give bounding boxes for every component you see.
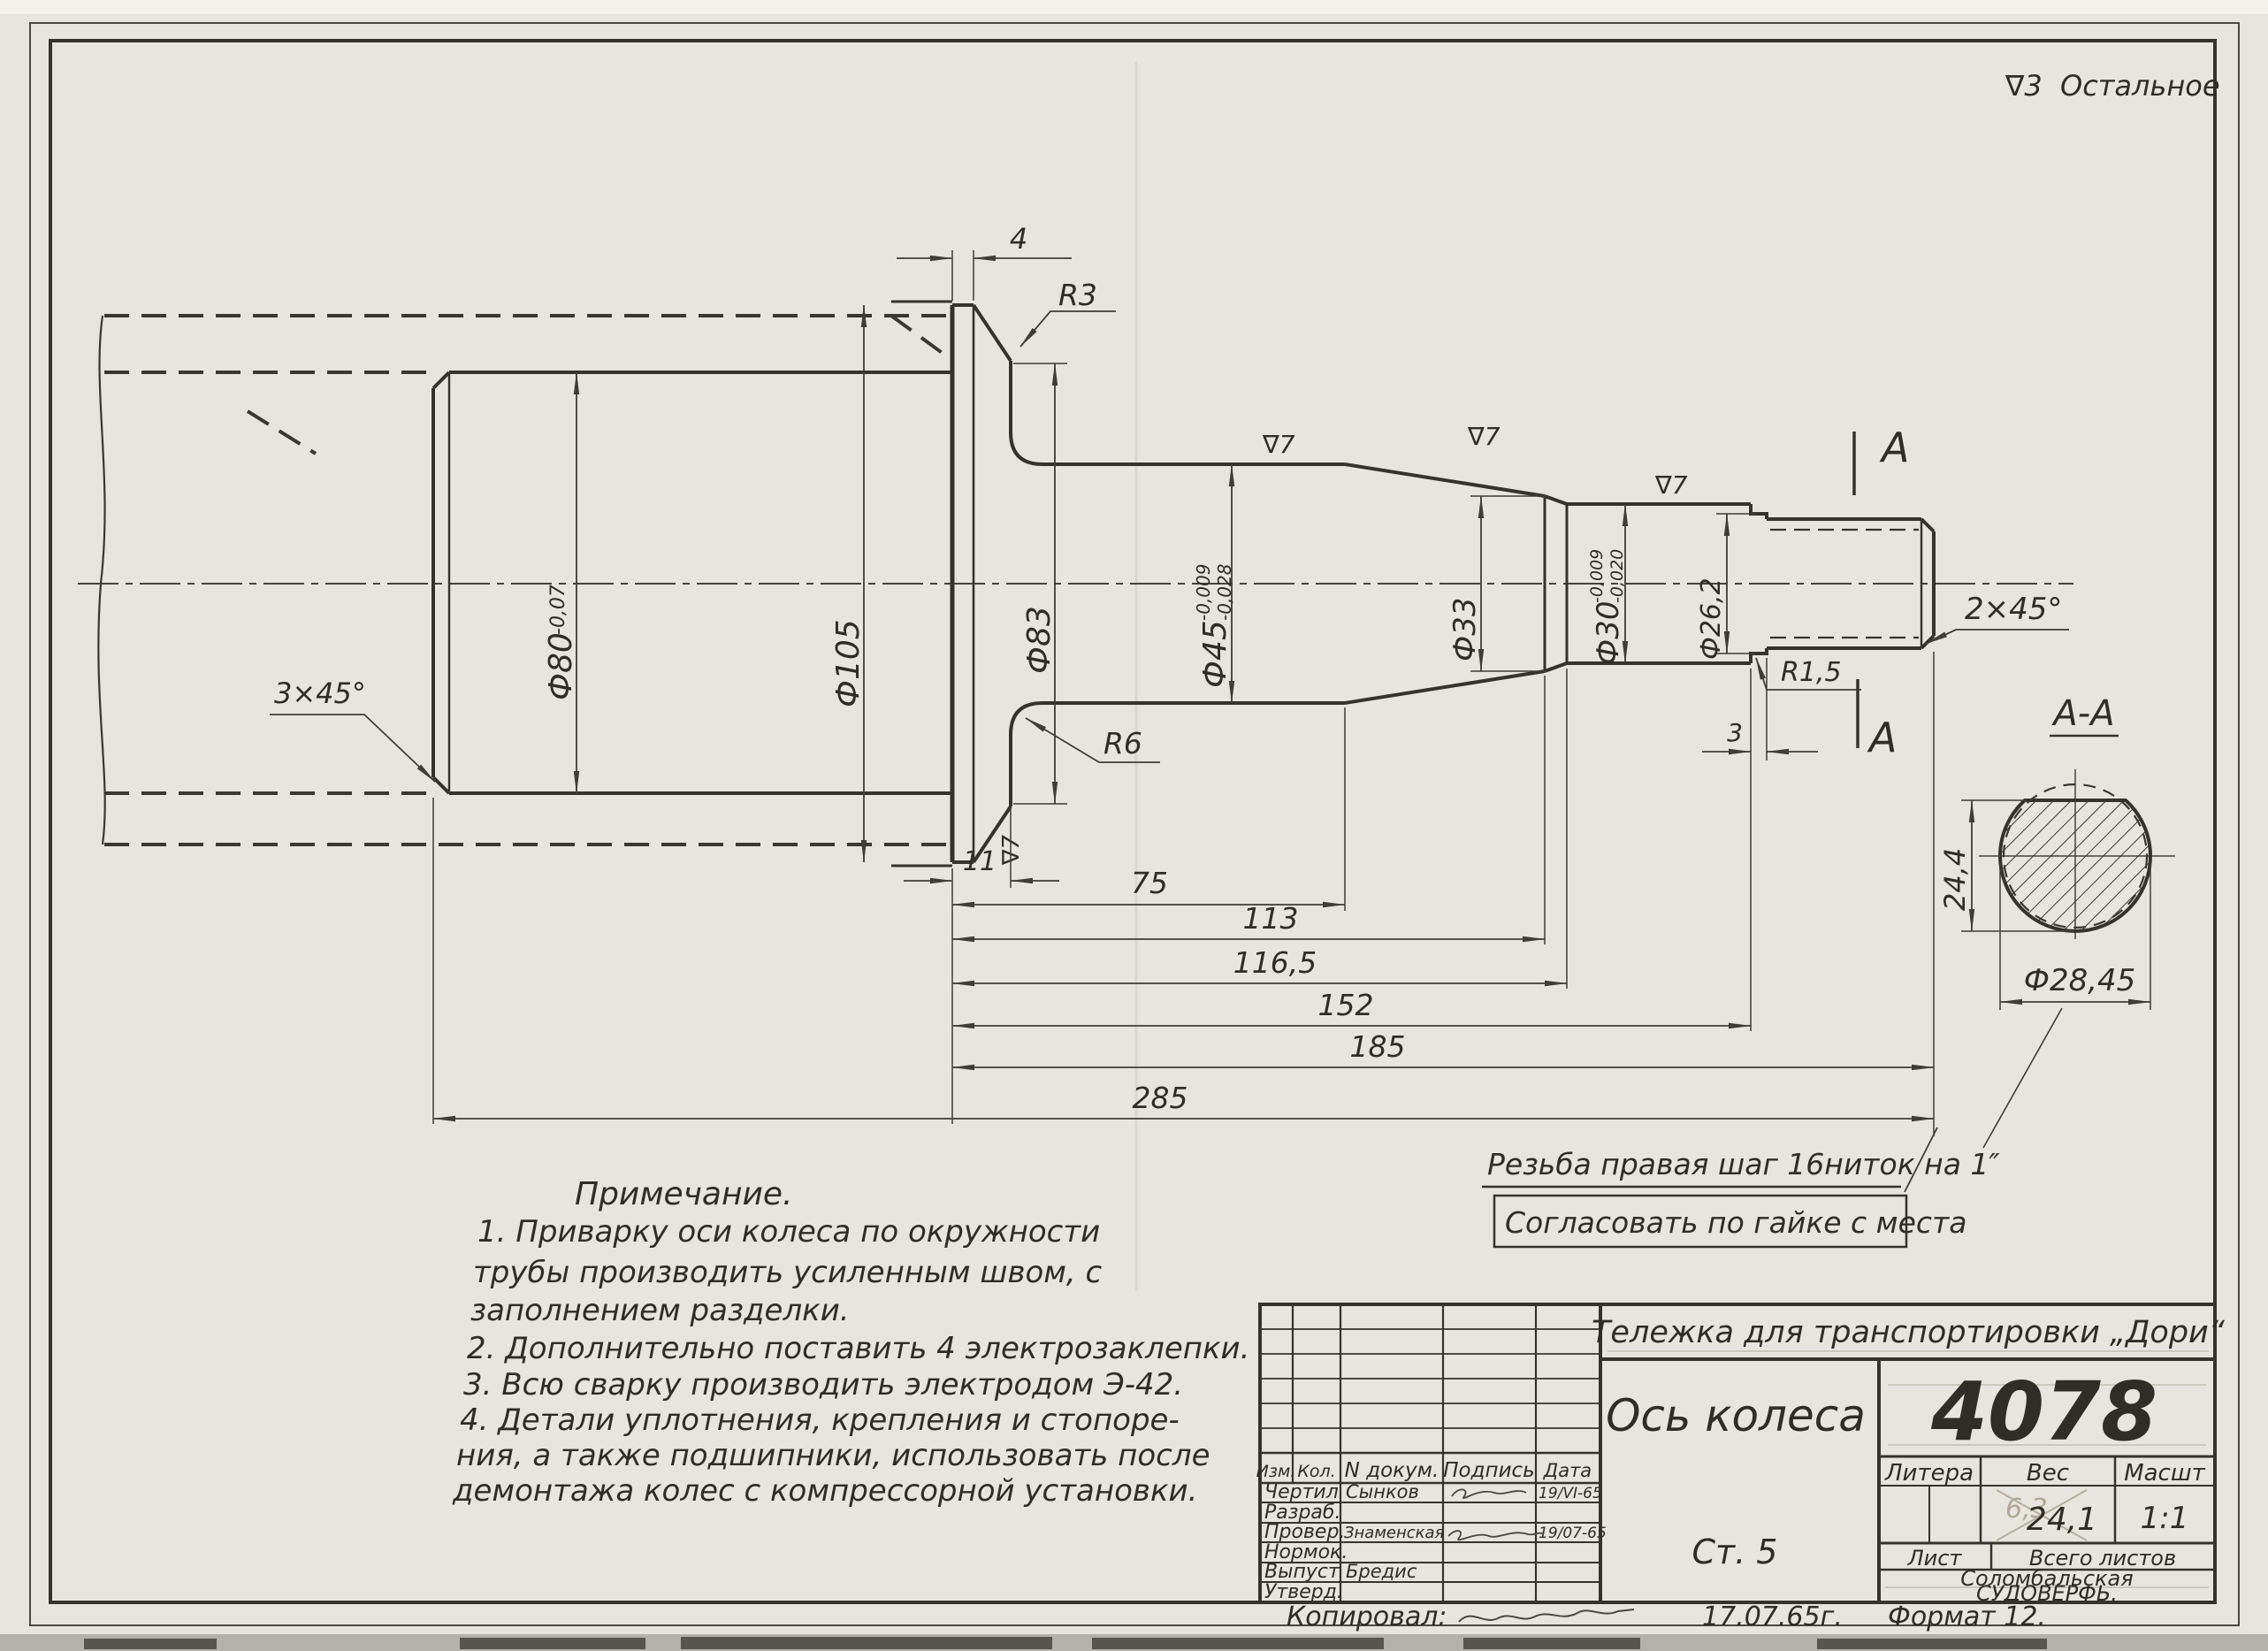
notes-title: Примечание. [575,1176,792,1212]
general-surface-note: ∇3 Остальное [2005,69,2220,103]
svg-text:2×45°: 2×45° [1965,592,2062,627]
sheet-label: Лист [1907,1546,1963,1571]
finish-mark-d45: ∇7 [1262,430,1295,459]
part-title: Ось колеса [1606,1390,1866,1441]
svg-text:Ф30: Ф30 [1591,600,1626,665]
row-date: 19/VI-65 [1539,1485,1602,1502]
surface-finish-symbol: ∇3 [2005,69,2043,103]
finish-mark-flange: ∇7 [998,835,1025,866]
note-line: демонтажа колес с компрессорной установк… [452,1473,1197,1509]
svg-text:-0,028: -0,028 [1214,564,1235,621]
col-podpis: Подпись [1443,1459,1534,1482]
material: Ст. 5 [1691,1533,1777,1571]
row-name: Сынков [1346,1481,1419,1502]
dim-75: 75 [1131,866,1168,900]
copied-date: 17.07.65г. [1702,1601,1843,1632]
svg-text:Ф105: Ф105 [830,619,867,707]
dim-152: 152 [1318,988,1374,1022]
thread-note-line2: Согласовать по гайке с места [1505,1205,1966,1240]
dim-113: 113 [1243,901,1299,936]
scan-edge-top [0,0,2268,14]
dim-116: 116,5 [1233,945,1317,980]
svg-text:3: 3 [1727,718,1743,747]
svg-text:11: 11 [963,846,997,877]
svg-text:Ф26,2: Ф26,2 [1696,577,1727,660]
dim-d83: Ф83 [1021,606,1058,674]
dim-thread-diameter: Ф28,45 [2024,963,2136,998]
col-ndokum: N докум. [1345,1459,1439,1482]
row-name: Бредис [1346,1561,1417,1582]
svg-text:-0,009: -0,009 [1193,564,1214,621]
scale-label: Масшт [2124,1460,2205,1487]
svg-text:3×45°: 3×45° [274,676,366,710]
col-data: Дата [1543,1460,1592,1481]
row-role: Чертил [1264,1481,1339,1503]
svg-text:Ф80: Ф80 [543,632,579,700]
dim-d26: Ф26,2 [1696,577,1727,660]
dim-285: 285 [1133,1081,1188,1115]
svg-text:-0,009: -0,009 [1587,549,1607,603]
svg-text:R3: R3 [1058,278,1097,312]
note-line: 1. Приварку оси колеса по окружности [477,1214,1100,1250]
surface-note-label: Остальное [2060,69,2220,103]
engineering-drawing: ∇3 Остальное ∇7 ∇7 ∇7 ∇7 [0,0,2268,1651]
note-line: 3. Всю сварку производить электродом Э-4… [463,1367,1183,1403]
weight-value: 24,1 [2027,1502,2097,1538]
svg-text:R6: R6 [1103,726,1142,761]
dim-185: 185 [1350,1029,1406,1064]
note-line: заполнением разделки. [470,1293,850,1328]
section-hatched-area [2000,800,2150,931]
row-date: 19/07-65 [1539,1525,1607,1542]
svg-text:Ф45: Ф45 [1197,620,1233,688]
dim-d30: Ф30 -0,009 -0,020 [1587,549,1627,665]
col-kol: Кол. [1297,1462,1335,1481]
dim-d105: Ф105 [830,619,867,707]
finish-mark-d30: ∇7 [1654,470,1688,500]
row-role: Провер. [1264,1521,1345,1543]
svg-text:-0,020: -0,020 [1607,549,1627,603]
scale-value: 1:1 [2141,1501,2189,1536]
section-title: A-A [2050,693,2114,734]
weight-label: Вес [2027,1460,2069,1487]
section-mark-top: A [1879,424,1909,471]
litera-label: Литера [1884,1460,1974,1487]
note-line: 2. Дополнительно поставить 4 электрозакл… [467,1331,1249,1366]
sheet-format: Формат 12. [1888,1601,2046,1632]
svg-text:R1,5: R1,5 [1781,657,1842,688]
row-role: Выпуст [1264,1561,1340,1583]
project-title: Тележка для транспортировки „Дори“ [1592,1315,2226,1350]
section-mark-bottom: A [1867,714,1897,761]
svg-text:Ф33: Ф33 [1447,597,1483,661]
note-line: 4. Детали уплотнения, крепления и стопор… [460,1403,1180,1438]
finish-mark-taper: ∇7 [1467,422,1501,451]
row-role: Утверд. [1264,1581,1343,1603]
dim-d33: Ф33 [1447,597,1483,661]
svg-text:Ф83: Ф83 [1021,606,1058,674]
copied-label: Копировал: [1287,1601,1447,1632]
svg-text:24,4: 24,4 [1938,848,1972,911]
row-name: Знаменская [1344,1524,1445,1542]
svg-text:-0,07: -0,07 [547,585,569,635]
drawing-number: 4078 [1930,1364,2157,1459]
dim-flat-height: 24,4 [1938,848,1972,911]
thread-note-line1: Резьба правая шаг 16ниток на 1″ [1487,1147,2000,1181]
svg-text:∇7: ∇7 [998,835,1025,866]
note-line: ния, а также подшипники, использовать по… [456,1438,1210,1473]
col-izm: Изм. [1256,1462,1296,1481]
note-line: трубы производить усиленным швом, с [473,1255,1103,1290]
drawing-sheet: ∇3 Остальное ∇7 ∇7 ∇7 ∇7 [0,0,2268,1651]
dim-d45: Ф45 -0,009 -0,028 [1193,564,1235,688]
svg-text:4: 4 [1010,222,1027,256]
